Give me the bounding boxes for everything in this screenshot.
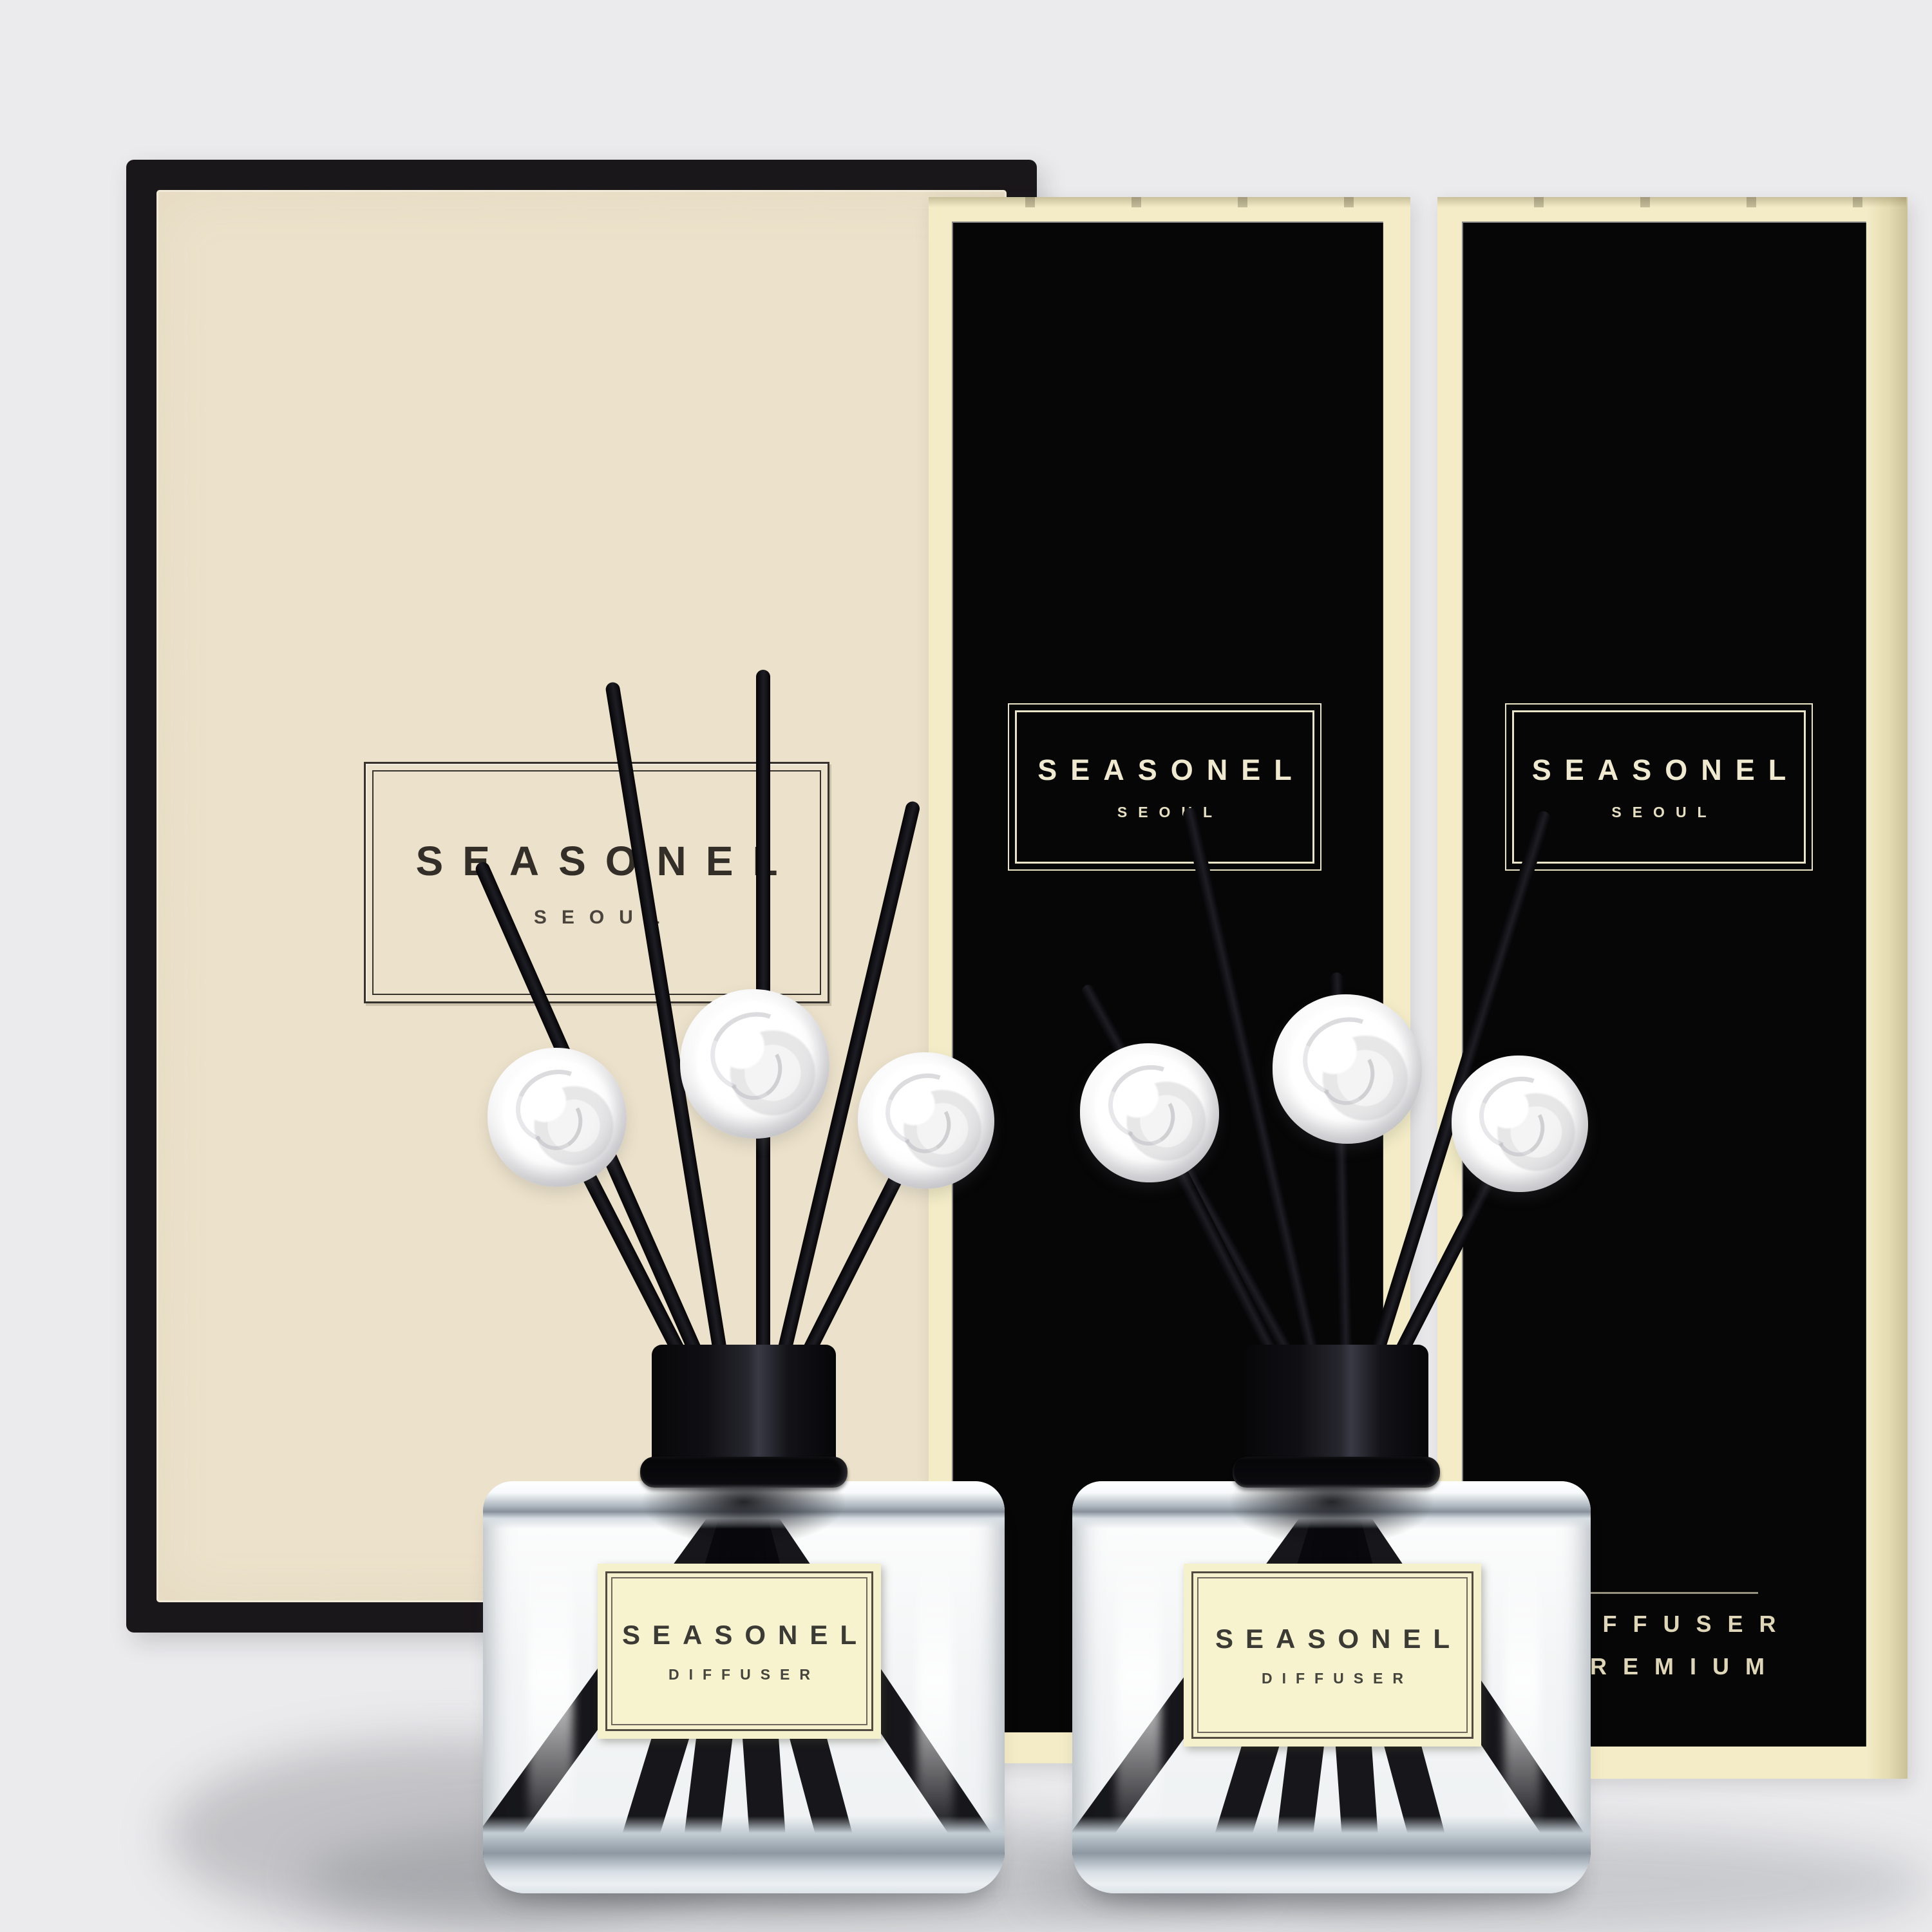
diffuser-bottle-left: SEASONEL DIFFUSER xyxy=(483,1481,1005,1893)
bottle-base xyxy=(483,1816,1005,1893)
glass-highlight xyxy=(917,1552,953,1835)
label-brand-text: SEASONEL xyxy=(1203,1624,1462,1654)
bottle-neck-shadow xyxy=(1226,1484,1438,1548)
bottle-label: SEASONEL DIFFUSER xyxy=(1184,1564,1481,1747)
product-box-left-logo-plate: SEASONEL SEOUL xyxy=(1008,703,1321,871)
label-type-text: DIFFUSER xyxy=(659,1666,820,1683)
logo-inner-frame: SEASONEL SEOUL xyxy=(1512,710,1806,864)
label-inner: SEASONEL DIFFUSER xyxy=(611,1577,867,1725)
rose-flower xyxy=(488,1048,627,1187)
logo-inner-frame: SEASONEL SEOUL xyxy=(1015,710,1314,864)
bottle-cap xyxy=(652,1345,836,1464)
footer-divider xyxy=(1565,1592,1758,1594)
box-side-face xyxy=(1866,197,1908,1779)
brand-wordmark: SEASONEL xyxy=(396,837,797,885)
glass-highlight xyxy=(1504,1552,1540,1835)
bottle-base xyxy=(1072,1816,1591,1893)
product-photo-scene: SEASONEL SEOUL SEASONEL SEOUL SEASONEL S… xyxy=(0,0,1932,1932)
brand-wordmark: SEASONEL xyxy=(1024,753,1305,787)
label-frame: SEASONEL DIFFUSER xyxy=(1191,1571,1473,1739)
label-frame: SEASONEL DIFFUSER xyxy=(605,1571,873,1731)
brand-city: SEOUL xyxy=(1600,804,1717,821)
logo-inner-frame: SEASONEL SEOUL xyxy=(372,770,821,995)
glass-highlight xyxy=(528,1539,573,1842)
bottle-cap xyxy=(1244,1345,1428,1464)
rose-flower xyxy=(1080,1043,1219,1182)
box-lid-edge xyxy=(929,197,1410,207)
label-inner: SEASONEL DIFFUSER xyxy=(1197,1577,1468,1733)
label-type-text: DIFFUSER xyxy=(1252,1670,1413,1687)
product-box-right-logo-plate: SEASONEL SEOUL xyxy=(1505,703,1813,871)
rose-flower xyxy=(1273,994,1422,1144)
rose-flower xyxy=(1452,1056,1588,1192)
label-brand-text: SEASONEL xyxy=(610,1620,869,1651)
bottle-cap-flange xyxy=(640,1457,848,1488)
diffuser-bottle-right: SEASONEL DIFFUSER xyxy=(1072,1481,1591,1893)
bottle-cap-flange xyxy=(1233,1457,1440,1488)
bottle-label: SEASONEL DIFFUSER xyxy=(598,1564,881,1739)
rose-flower xyxy=(680,989,829,1139)
glass-highlight xyxy=(1116,1539,1161,1842)
brand-wordmark: SEASONEL xyxy=(1519,753,1800,787)
rose-flower xyxy=(858,1052,994,1189)
bottle-neck-shadow xyxy=(638,1484,850,1548)
brand-city: SEOUL xyxy=(1106,804,1223,821)
box-lid-edge xyxy=(1437,197,1908,207)
